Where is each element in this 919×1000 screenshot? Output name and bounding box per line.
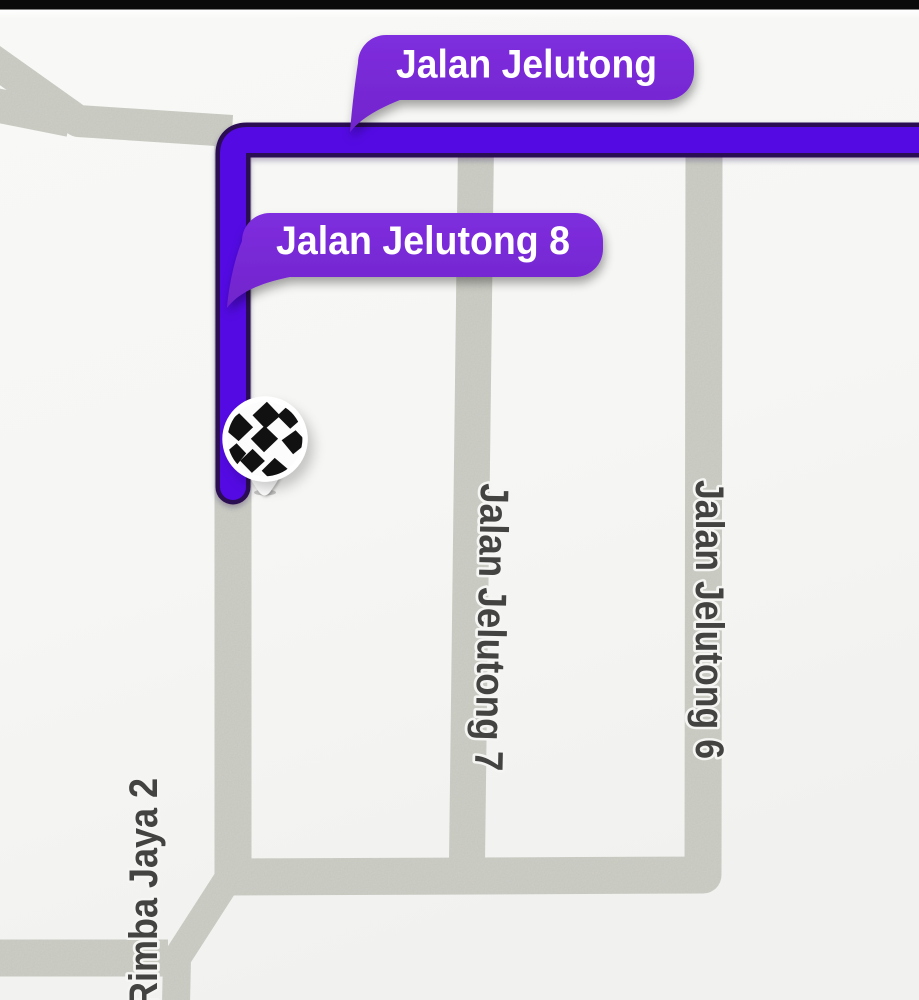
- svg-text:Jalan Jelutong 8: Jalan Jelutong 8: [276, 219, 570, 263]
- svg-text:Jalan Jelutong 6: Jalan Jelutong 6: [687, 480, 731, 759]
- svg-text:Jalan Jelutong: Jalan Jelutong: [396, 43, 657, 87]
- svg-text:Rimba Jaya 2: Rimba Jaya 2: [122, 778, 166, 1000]
- svg-text:Jalan Jelutong 7: Jalan Jelutong 7: [466, 483, 516, 772]
